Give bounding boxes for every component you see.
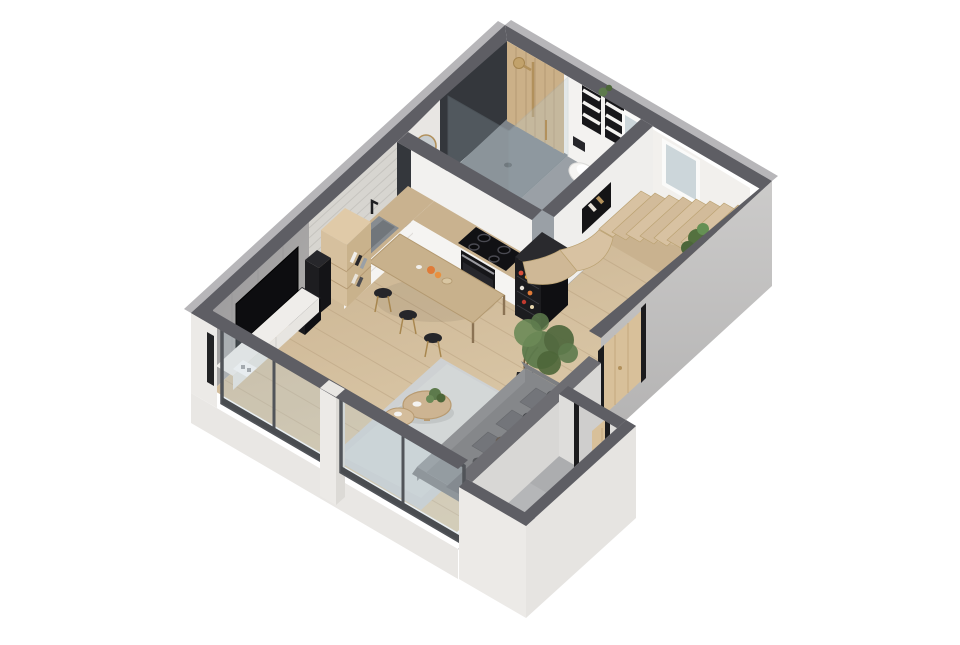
door-handle — [618, 366, 622, 370]
plate — [413, 401, 422, 406]
shower-head — [514, 58, 525, 69]
orange-fruit — [427, 266, 435, 274]
orange-fruit — [435, 272, 441, 278]
door-jamb — [574, 398, 579, 470]
cup — [416, 265, 422, 269]
floorplan-stage — [0, 0, 960, 645]
floorplan-render — [0, 0, 960, 645]
bowl — [442, 278, 452, 284]
plate — [394, 412, 402, 417]
stub-slot — [207, 332, 214, 386]
door-jamb — [641, 303, 646, 383]
